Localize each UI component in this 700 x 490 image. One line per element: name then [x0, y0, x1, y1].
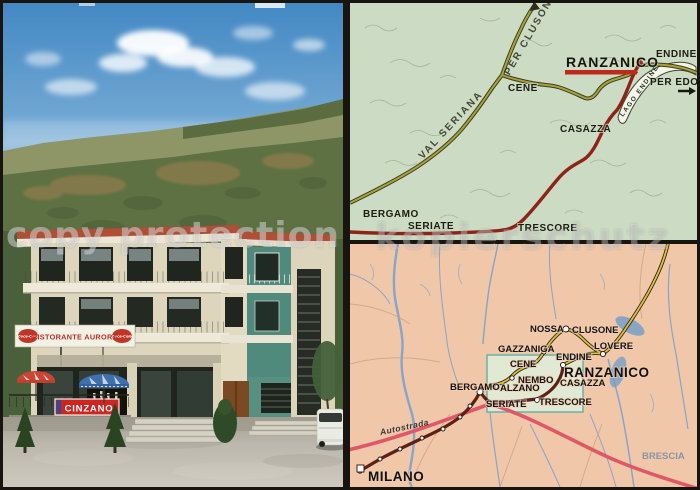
label-endine-bottom: ENDINE	[556, 352, 592, 363]
label-lovere: LOVERE	[594, 341, 633, 352]
map-bottom-panel: NOSSA CLUSONE GAZZANIGA LOVERE ENDINE CE…	[350, 244, 697, 487]
ranzanico-underline	[565, 70, 637, 75]
label-nossa: NOSSA	[530, 324, 564, 335]
label-gazzaniga: GAZZANIGA	[498, 344, 555, 355]
label-trescore-top: TRESCORE	[518, 223, 578, 234]
scan-artifact	[79, 3, 95, 6]
restaurant-sign: Coca-Cola Coca-Cola RISTORANTE AURORA	[15, 325, 135, 347]
label-cene-top: CENE	[508, 83, 538, 94]
cinzano-sign: CINZANO	[55, 399, 119, 415]
map-top: BERGAMO SERIATE TRESCORE CASAZZA CENE RA…	[350, 3, 697, 240]
map-top-panel: BERGAMO SERIATE TRESCORE CASAZZA CENE RA…	[350, 3, 697, 240]
label-ranzanico-top: RANZANICO	[566, 54, 659, 70]
label-per-edolo: PER EDOLO	[650, 77, 697, 88]
map-bottom: NOSSA CLUSONE GAZZANIGA LOVERE ENDINE CE…	[350, 244, 697, 487]
restaurant-sign-text: RISTORANTE AURORA	[32, 333, 119, 342]
label-alzano: ALZANO	[500, 383, 540, 394]
building: Coca-Cola Coca-Cola RISTORANTE AURORA	[15, 225, 335, 421]
label-bergamo-top: BERGAMO	[363, 209, 419, 220]
label-casazza-bottom: CASAZZA	[560, 378, 606, 389]
label-seriate-top: SERIATE	[408, 221, 454, 232]
storefront-pillar	[127, 363, 137, 421]
label-cene-bottom: CENE	[510, 359, 536, 370]
milano-node	[357, 465, 364, 472]
teal-balcony-door	[255, 253, 279, 281]
label-clusone: CLUSONE	[572, 325, 618, 336]
label-trescore-bottom: TRESCORE	[539, 397, 592, 408]
scan-artifact	[255, 3, 285, 8]
postcard: Coca-Cola Coca-Cola RISTORANTE AURORA	[0, 0, 700, 490]
grille-window	[261, 383, 291, 413]
cinzano-sign-text: CINZANO	[65, 404, 114, 415]
label-endine-top: ENDINE	[656, 49, 697, 60]
label-seriate-bottom: SERIATE	[486, 399, 526, 410]
photo-illustration: Coca-Cola Coca-Cola RISTORANTE AURORA	[3, 3, 343, 487]
label-milano: MILANO	[368, 469, 424, 484]
photo-panel: Coca-Cola Coca-Cola RISTORANTE AURORA	[3, 3, 343, 487]
label-brescia: BRESCIA	[642, 451, 685, 462]
white-van	[316, 409, 343, 451]
label-casazza-top: CASAZZA	[560, 124, 611, 135]
label-bergamo-bottom: BERGAMO	[450, 382, 500, 393]
